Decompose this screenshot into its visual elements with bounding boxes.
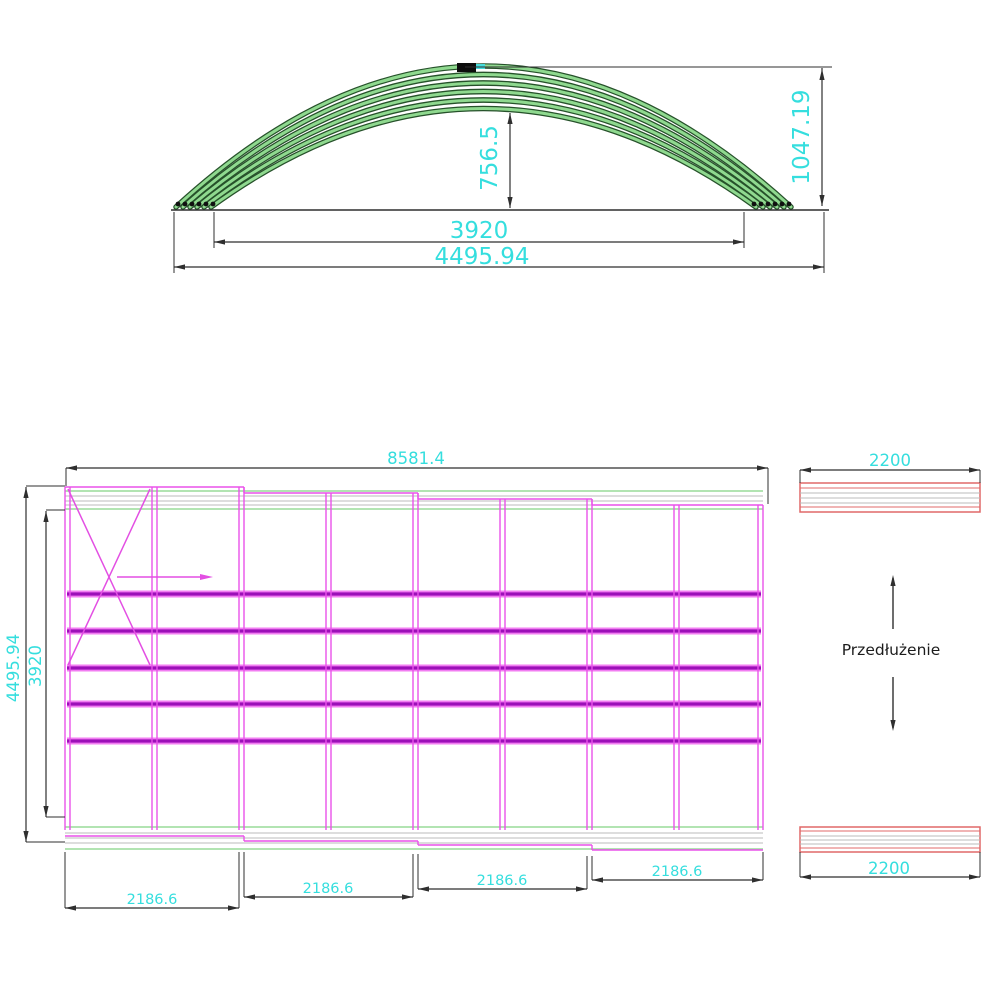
plan-dim-module-1-text: 2186.6 [127,892,178,908]
plan-dim-outer-depth-text: 4495.94 [4,634,23,702]
extension-dim-bottom-text: 2200 [868,859,910,878]
arrowhead-up [43,511,48,522]
front-view: 756.5 1047.19 3920 4495.94 [171,63,832,273]
arrowhead-left [244,894,255,899]
arrowhead-right [228,905,239,910]
plan-top-band [65,487,763,509]
arrowhead-left [800,874,811,879]
arrowhead-up [507,113,512,124]
plan-posts [65,487,763,830]
arrowhead-left [174,264,185,269]
arrowhead-left [214,239,225,244]
plan-dim-inner-depth-text: 3920 [26,645,45,687]
extension-dim-top-text: 2200 [869,451,911,470]
arrowhead-right [757,465,768,470]
plan-rails [67,594,761,741]
drawing-canvas: 756.5 1047.19 3920 4495.94 [0,0,1000,1000]
plan-dim-inner-depth [46,510,65,817]
arrowhead-left [66,465,77,470]
arrowhead-left [65,905,76,910]
plan-bottom-band [65,827,763,850]
arrowhead-right [733,239,744,244]
arrowhead-right [813,264,824,269]
arrowhead-right [969,874,980,879]
extension-dim-top [800,470,980,483]
arrowhead-down [819,195,824,206]
extension-column: 2200 Przedłużenie 2200 [800,451,980,880]
extension-strip-bottom [800,827,980,852]
arrowhead-up [890,575,895,586]
arrowhead-right [969,467,980,472]
plan-dim-module-3-text: 2186.6 [477,873,528,889]
arrowhead-right [402,894,413,899]
plan-dim-total-width-text: 8581.4 [387,449,445,468]
arrowhead-down [23,831,28,842]
arch-foot-caps [176,202,792,207]
arrowhead-down [43,806,48,817]
cad-drawing-sheet: 756.5 1047.19 3920 4495.94 [0,0,1000,1000]
plan-dim-total-width [66,468,768,504]
plan-view: 8581.4 4495.94 3920 2186.6 [4,449,768,911]
extension-label: Przedłużenie [842,641,941,659]
arrowhead-left [592,877,603,882]
arrowhead-left [418,886,429,891]
arrowhead-left [800,467,811,472]
front-dim-total-height-text: 1047.19 [789,89,815,184]
extension-strip-top [800,483,980,512]
front-dim-outer-span-text: 4495.94 [434,244,529,270]
arrowhead-down [507,197,512,208]
arrowhead-up [23,487,28,498]
plan-direction-arrow [117,574,213,580]
front-dim-inner-span-text: 3920 [450,218,509,244]
arrowhead-right [576,886,587,891]
plan-dim-module-4-text: 2186.6 [652,864,703,880]
arrowhead-right [200,574,213,580]
plan-dim-module-2-text: 2186.6 [303,881,354,897]
arrowhead-right [752,877,763,882]
front-dim-inner-height-text: 756.5 [477,125,503,191]
arrowhead-down [890,720,895,731]
arrowhead-up [819,69,824,80]
